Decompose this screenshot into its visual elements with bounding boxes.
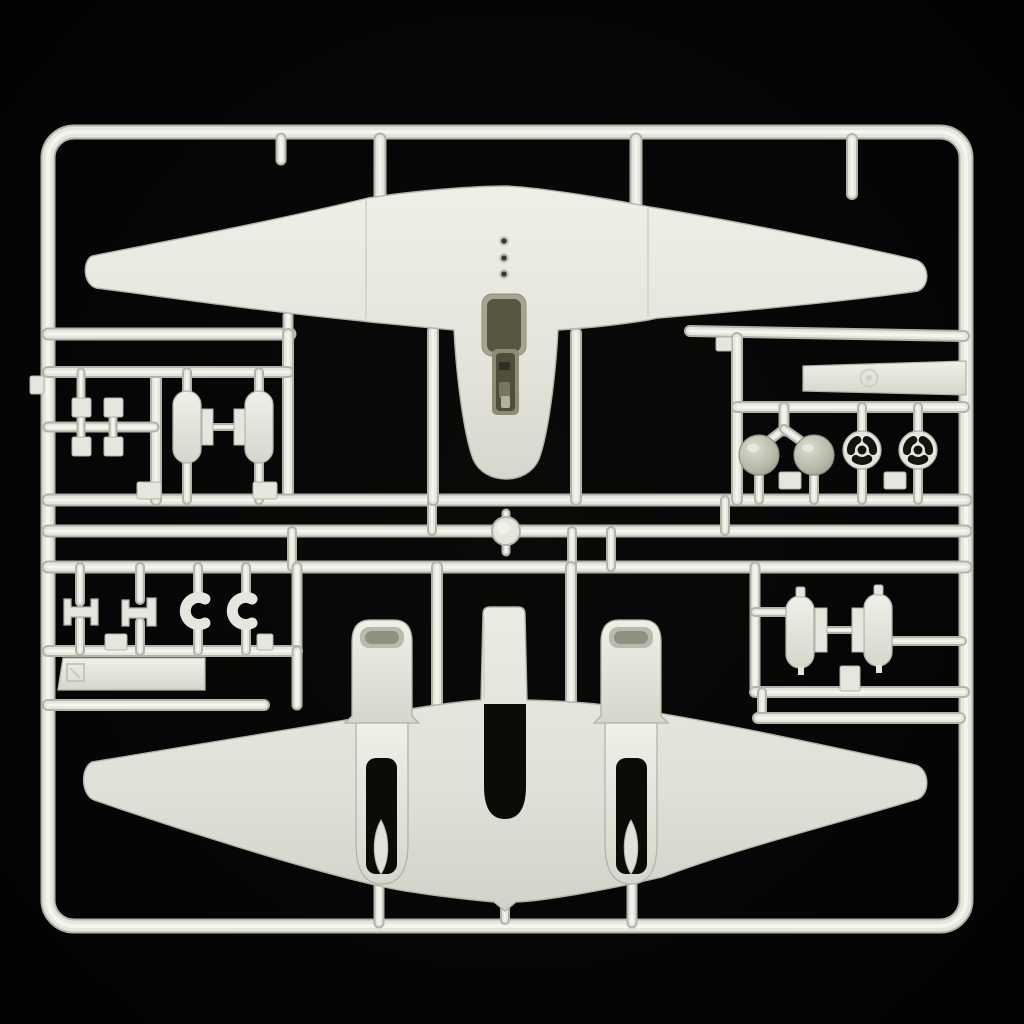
wheel-tab [202,409,213,445]
rivet-hole [501,271,507,277]
bomb-tip [798,667,804,675]
bomb-nub [874,585,883,595]
c-shaped-fitting [185,598,205,625]
rivet-hole [501,255,507,261]
cockpit-detail [499,382,510,398]
gate-block [716,337,732,351]
bomb-bay-opening [484,704,526,819]
cockpit-detail [501,396,510,408]
gate-block [30,376,44,394]
nacelle-right-scoop-mouth-deep [614,631,648,644]
sprue-svg [0,0,1024,1024]
c-shaped-fitting [232,598,252,625]
bomb-tab [815,608,827,652]
cockpit-recess-deep [487,299,521,352]
kit-sprue-photo [0,0,1024,1024]
flat-strip-part [58,658,205,690]
hub-slot [856,459,869,461]
nacelle-left-scoop-mouth-deep [365,631,399,644]
gate-block [884,472,906,489]
square-fitting [104,398,123,417]
bomb-tip [876,665,882,673]
rivet-hole [501,238,507,244]
wheel-tab [234,409,245,445]
spinner-highlight [802,444,814,452]
propeller-spinner [794,435,834,475]
bomb-half [786,596,814,668]
square-fitting [104,437,123,456]
hub-slot [912,459,925,461]
gate-block [137,482,161,499]
square-fitting [72,437,91,456]
square-fitting [72,398,91,417]
bomb-nub [796,587,805,597]
flat-strip-part [803,361,966,395]
model-parts [58,186,966,911]
bomb-half [864,594,892,666]
gate-block [840,666,860,691]
wheel-half [173,391,201,463]
gate-block [779,472,801,489]
gate-block [253,482,277,499]
strip-emboss-mark [866,375,872,381]
spinner-highlight [747,444,759,452]
bomb-tab [852,608,864,652]
gate-block [257,634,273,650]
gate-block [105,634,127,650]
injection-node-highlight [497,522,510,535]
hub-axle-hole [914,446,923,455]
propeller-spinner [739,435,779,475]
wheel-half [245,391,273,463]
cockpit-detail [499,362,510,370]
hub-axle-hole [858,446,867,455]
